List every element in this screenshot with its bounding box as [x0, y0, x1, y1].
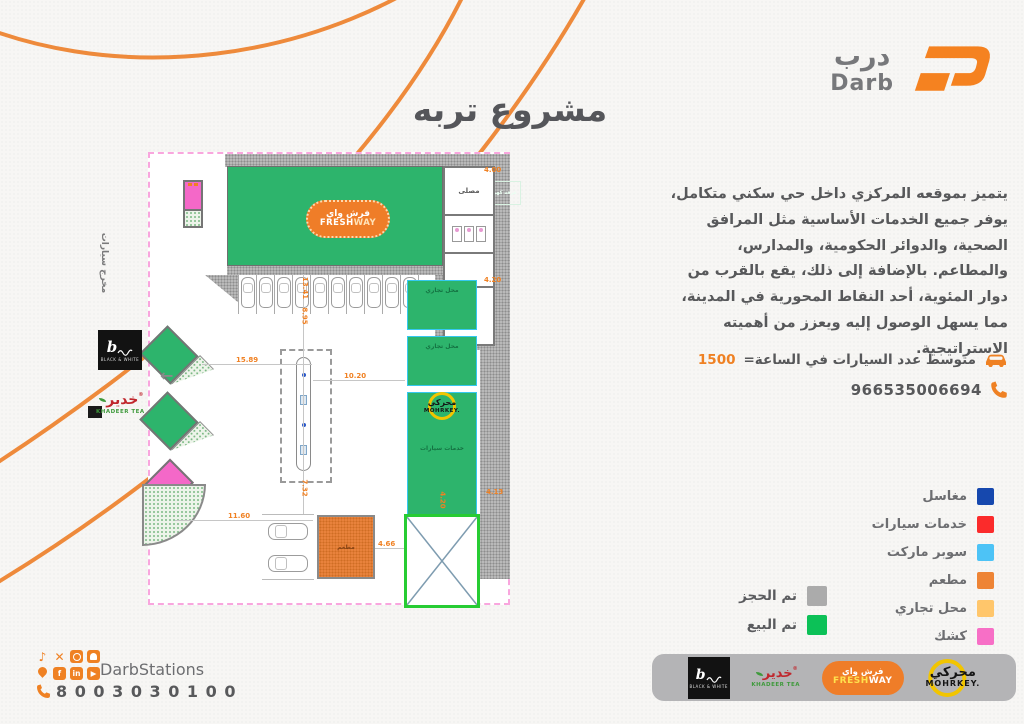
instagram-icon [70, 650, 83, 663]
mohrkey-logo-english: MOHRKEY. [925, 680, 980, 689]
status-label: تم البيع [747, 617, 797, 633]
car-icon [268, 523, 308, 540]
contact-phone: 966535006694 [851, 381, 1008, 399]
khadeer-tea-logo: ®خدير KHADEER TEA [96, 392, 145, 415]
road-hatch-ramp [205, 275, 239, 303]
car-icon [268, 555, 308, 572]
facebook-icon: f [53, 667, 66, 680]
legend-swatch [977, 516, 994, 533]
parking-row [238, 275, 419, 314]
status-swatch [807, 586, 827, 606]
dim-label: 8.95 [301, 307, 309, 324]
phone-icon [36, 684, 51, 699]
khadeer-logo-english: KHADEER TEA [96, 409, 145, 416]
car-icon [984, 353, 1008, 367]
parking-bay [310, 275, 328, 314]
legend-swatch [977, 572, 994, 589]
dim-line [202, 364, 312, 365]
restaurant-parking [262, 514, 314, 580]
legend-row: مغاسل [922, 488, 994, 505]
car-icon [241, 277, 255, 308]
car-icon [331, 277, 345, 308]
legend-label: مغاسل [922, 489, 967, 504]
black-white-glyph: b [107, 338, 134, 356]
khadeer-logo-english: KHADEER TEA [751, 682, 800, 689]
flyer-page: درب Darb مشروع تربه يتميز بموقعه المركزي… [0, 0, 1024, 724]
dim-label: 4.00 [484, 166, 501, 174]
social-handle: DarbStations [100, 660, 204, 679]
legend-swatch [977, 488, 994, 505]
black-white-glyph: b [696, 667, 722, 683]
mohrkey-logo: محركي MOHRKEY. [925, 666, 980, 689]
wc-room [445, 216, 493, 254]
status-legend: تم الحجز تم البيع [739, 586, 827, 635]
parking-bay [364, 275, 382, 314]
shop-block-1: محل تجاري [407, 280, 477, 330]
landscape-fan [142, 484, 206, 546]
avg-cars-stat: متوسط عدد السيارات في الساعة= 1500 [698, 352, 1008, 368]
wc-stall [464, 226, 474, 242]
freshway-logo-english: FRESHWAY [320, 219, 376, 229]
dim-label: 15.89 [236, 356, 258, 364]
dim-label: 4.20 [439, 491, 447, 508]
shop-block-2: محل تجاري [407, 336, 477, 386]
dim-line [313, 380, 405, 381]
legend-label: سوبر ماركت [887, 545, 967, 560]
mohrkey-logo-arabic: محركي [428, 399, 456, 408]
direction-arrow: ← [160, 366, 173, 385]
wc-stalls [452, 226, 486, 242]
car-services-label: خدمات سيارات [408, 445, 476, 452]
status-row: تم البيع [747, 615, 827, 635]
kiosk-landscape [185, 209, 201, 226]
page-title: مشروع تربه [370, 90, 650, 129]
status-swatch [807, 615, 827, 635]
legend-label: مطعم [929, 573, 967, 588]
darb-logo-icon [904, 38, 996, 100]
reserved-plot [404, 514, 480, 608]
shop-block-label: محل تجاري [408, 287, 476, 294]
avg-cars-label: متوسط عدد السيارات في الساعة= [743, 352, 976, 368]
phone-icon [990, 381, 1008, 399]
black-white-caption: BLACK & WHITE [101, 357, 139, 362]
black-white-logo: b BLACK & WHITE [688, 657, 730, 699]
legend-row: كشك [934, 628, 994, 645]
restaurant-label: مطعم [337, 544, 355, 551]
car-icon [349, 277, 363, 308]
mohrkey-logo-arabic: محركي [930, 666, 976, 680]
freshway-logo-english: FRESHWAY [833, 677, 892, 687]
diagonal-shop-2 [139, 391, 213, 465]
parking-bay [256, 275, 274, 314]
khadeer-logo-arabic: ®خدير [97, 392, 143, 409]
snapchat-icon [87, 650, 100, 663]
wc-stall [452, 226, 462, 242]
dim-label: 10.20 [344, 372, 366, 380]
car-exit-label: مخرج سيارات [99, 221, 109, 305]
footer-phone: 8 0 0 3 0 3 0 1 0 0 [36, 682, 236, 701]
black-white-caption: BLACK & WHITE [689, 684, 727, 689]
car-icon [259, 277, 273, 308]
dim-label: 7.32 [301, 479, 309, 496]
legend-row: مطعم [929, 572, 994, 589]
dim-label: 13.41 [301, 277, 309, 299]
status-row: تم الحجز [739, 586, 827, 606]
car-icon [313, 277, 327, 308]
project-description: يتميز بموقعه المركزي داخل حي سكني متكامل… [648, 182, 1008, 363]
legend-swatch [977, 544, 994, 561]
parking-bay [274, 275, 292, 314]
legend-row: سوبر ماركت [887, 544, 994, 561]
shop-block-label: محل تجاري [408, 343, 476, 350]
darb-logo-english: Darb [830, 72, 894, 95]
category-legend: مغاسل خدمات سيارات سوبر ماركت مطعم محل ت… [872, 488, 994, 645]
dim-label: 4.13 [486, 488, 503, 496]
dim-label: 4.66 [378, 540, 395, 548]
car-icon [367, 277, 381, 308]
darb-logo: درب Darb [830, 38, 996, 100]
mohrkey-logo: محركي MOHRKEY. [408, 399, 476, 414]
diagonal-shop-1 [139, 325, 213, 399]
darb-logo-arabic: درب [830, 43, 894, 71]
darb-logo-text: درب Darb [830, 43, 894, 94]
legend-row: خدمات سيارات [872, 516, 994, 533]
legend-row: محل تجاري [895, 600, 994, 617]
black-white-logo: b BLACK & WHITE [98, 330, 142, 370]
freshway-logo: فرش واي FRESHWAY [306, 200, 390, 238]
parking-bay [382, 275, 400, 314]
dim-label: 11.60 [228, 512, 250, 520]
kiosk-block [183, 180, 203, 228]
legend-swatch [977, 600, 994, 617]
kiosk-top [185, 182, 201, 209]
legend-label: كشك [934, 629, 967, 644]
wc-stall [476, 226, 486, 242]
location-pin-icon [36, 667, 49, 680]
youtube-icon: ▶ [87, 667, 100, 680]
parking-bay [238, 275, 256, 314]
dim-line [375, 548, 404, 549]
car-icon [277, 277, 291, 308]
avg-cars-value: 1500 [698, 352, 736, 368]
parking-bay [346, 275, 364, 314]
parking-bay [328, 275, 346, 314]
linkedin-icon: in [70, 667, 83, 680]
leaf-icon [756, 672, 763, 676]
restaurant-block: مطعم [317, 515, 375, 579]
khadeer-tea-logo: ®خدير KHADEER TEA [751, 666, 800, 688]
status-label: تم الحجز [739, 588, 797, 604]
mohrkey-logo-english: MOHRKEY. [424, 408, 460, 414]
dim-line [175, 520, 313, 521]
prayer-room: مصلى [445, 168, 493, 216]
partner-bar: b BLACK & WHITE ®خدير KHADEER TEA فرش وا… [652, 654, 1016, 701]
khadeer-logo-arabic: ®خدير [754, 666, 798, 682]
car-icon [385, 277, 399, 308]
site-plan: غرفة كهرباء فرش واي FRESHWAY مصلى إداره [148, 152, 510, 605]
legend-label: خدمات سيارات [872, 517, 967, 532]
dim-label: 4.20 [484, 276, 501, 284]
freshway-logo: فرش واي FRESHWAY [822, 661, 904, 695]
tiktok-icon: ♪ [36, 650, 49, 663]
legend-label: محل تجاري [895, 601, 967, 616]
supermarket-block: غرفة كهرباء فرش واي FRESHWAY [227, 166, 443, 266]
x-diagonals [407, 517, 477, 605]
legend-swatch [977, 628, 994, 645]
x-icon: ✕ [53, 650, 66, 663]
footer-phone-number: 8 0 0 3 0 3 0 1 0 0 [56, 682, 236, 701]
contact-phone-number: 966535006694 [851, 381, 982, 399]
social-icons: ♪ ✕ f in ▶ [36, 650, 102, 682]
